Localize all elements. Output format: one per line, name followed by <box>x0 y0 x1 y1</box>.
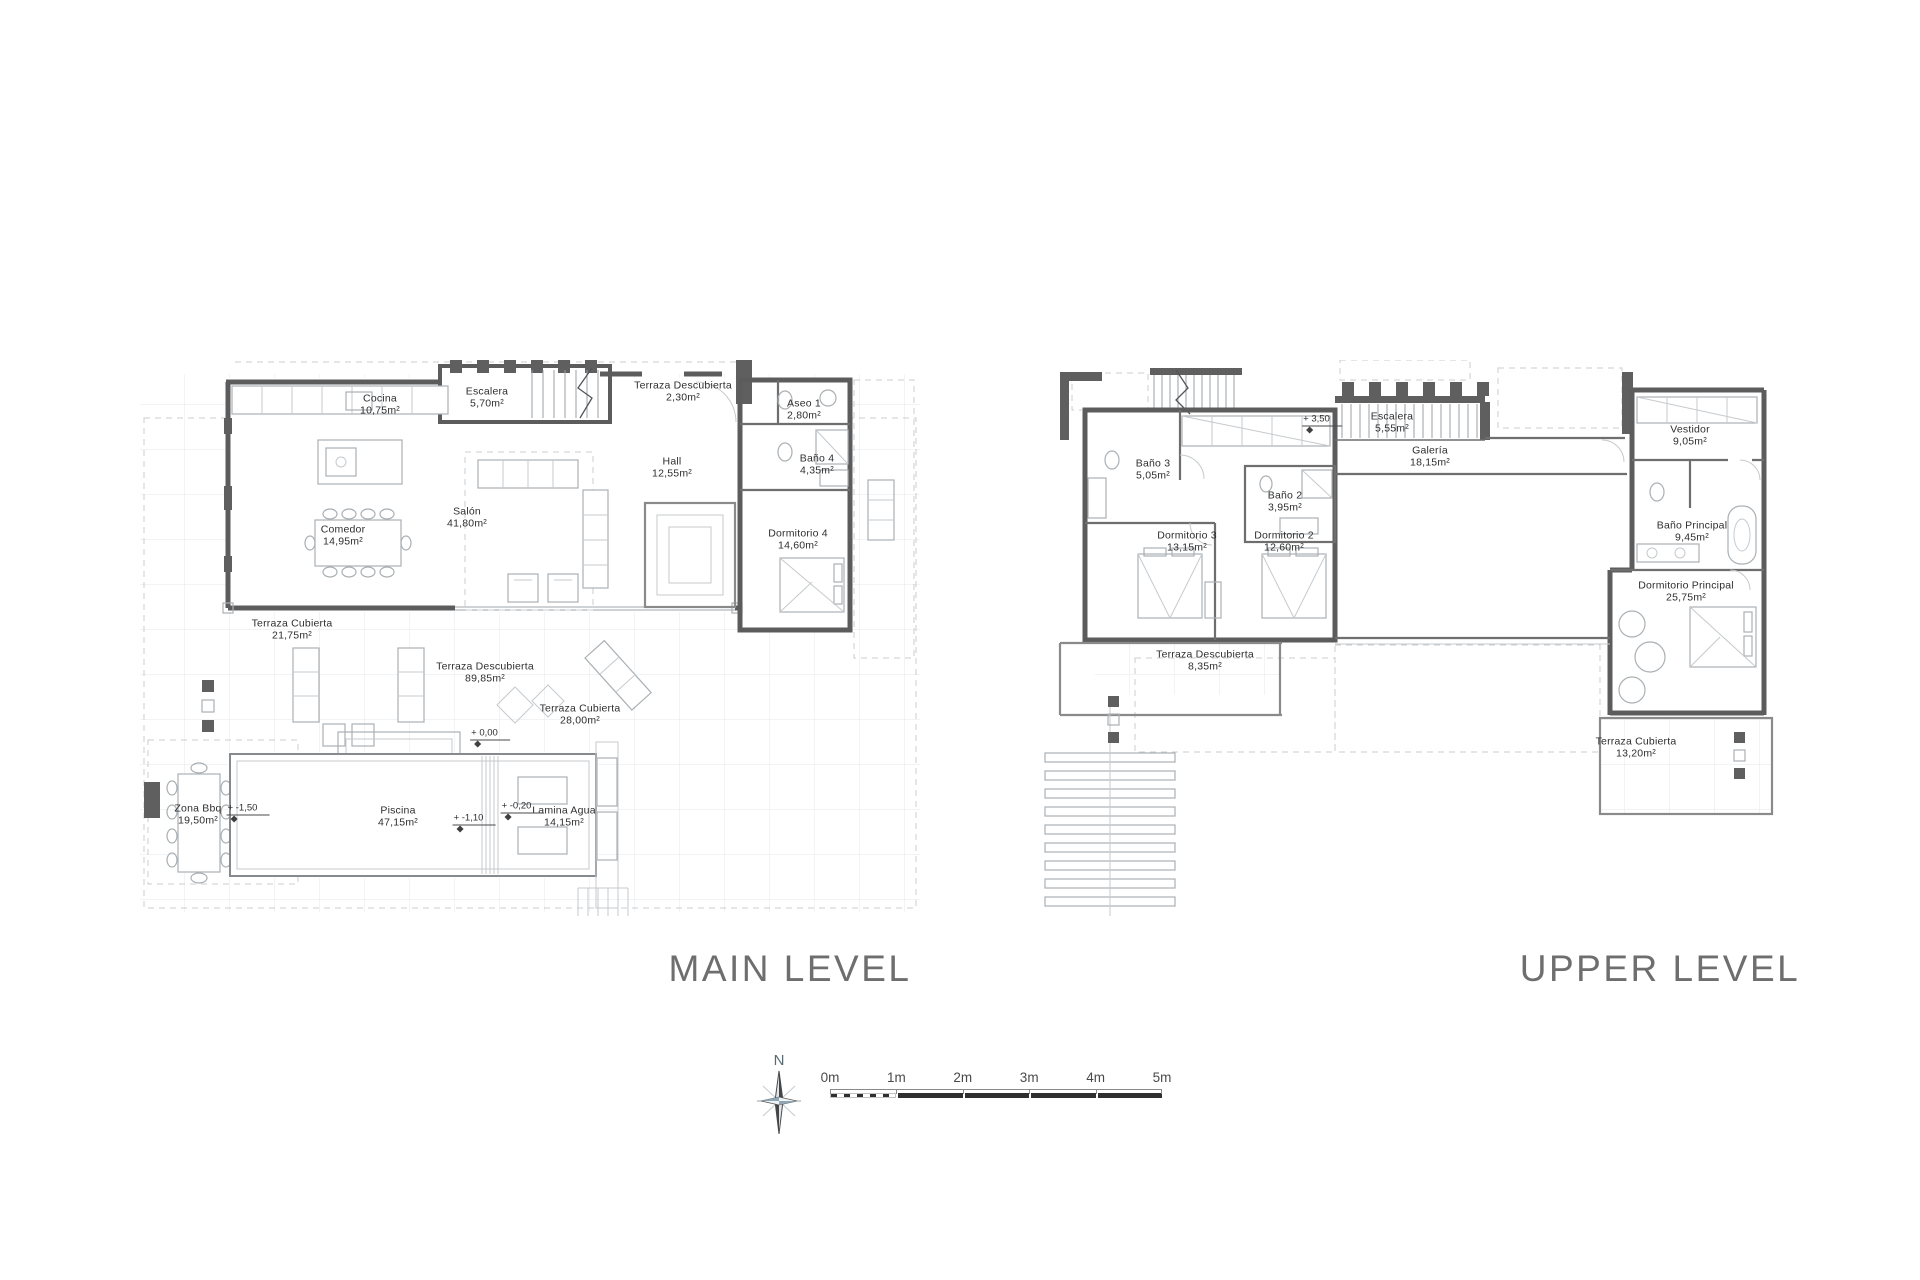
room-label: Escalera5,55m² <box>1371 411 1413 436</box>
room-area: 9,05m² <box>1670 436 1710 448</box>
room-name: Comedor <box>321 524 366 536</box>
room-name: Terraza Cubierta <box>540 703 621 715</box>
room-area: 3,95m² <box>1268 502 1302 514</box>
scale-tick-label: 5m <box>1153 1070 1172 1085</box>
floorplan-sheet: Cocina10,75m² Escalera5,70m² Terraza Des… <box>0 0 1920 1280</box>
level-marker: + -1,10 <box>453 813 496 832</box>
room-label: Baño 23,95m² <box>1268 490 1302 515</box>
room-name: Dormitorio 4 <box>768 528 828 540</box>
scale-segment <box>1098 1093 1162 1098</box>
upper-level-plan: Baño 35,05m² Escalera5,55m² Galería18,15… <box>1040 360 1850 920</box>
room-area: 4,35m² <box>800 465 834 477</box>
room-area: 13,20m² <box>1596 748 1677 760</box>
deck-stairs <box>1045 696 1175 916</box>
room-area: 41,80m² <box>447 518 487 530</box>
room-area: 5,70m² <box>466 398 508 410</box>
room-label: Escalera5,70m² <box>466 386 508 411</box>
scale-segment <box>965 1093 1029 1098</box>
room-area: 18,15m² <box>1410 457 1450 469</box>
room-label: Zona Bbq19,50m² <box>174 803 221 828</box>
bedroom2-bed <box>1262 548 1326 618</box>
room-label: Vestidor9,05m² <box>1670 424 1710 449</box>
room-label: Cocina10,75m² <box>360 393 400 418</box>
room-label: Comedor14,95m² <box>321 524 366 549</box>
room-label: Galería18,15m² <box>1410 445 1450 470</box>
room-label: Terraza Cubierta21,75m² <box>252 618 333 643</box>
room-label: Salón41,80m² <box>447 506 487 531</box>
scale-segment <box>898 1093 962 1098</box>
scale-segment <box>1031 1093 1095 1098</box>
room-area: 19,50m² <box>174 815 221 827</box>
room-name: Salón <box>447 506 487 518</box>
scale-bar-graphic <box>830 1089 1162 1098</box>
scale-tick-label: 4m <box>1086 1070 1105 1085</box>
room-name: Vestidor <box>1670 424 1710 436</box>
room-name: Piscina <box>378 805 418 817</box>
room-area: 47,15m² <box>378 817 418 829</box>
bedroom4-bed <box>780 558 844 612</box>
room-area: 14,60m² <box>768 540 828 552</box>
room-name: Terraza Cubierta <box>1596 736 1677 748</box>
room-label: Baño Principal9,45m² <box>1657 520 1728 545</box>
room-name: Aseo 1 <box>787 398 821 410</box>
room-area: 5,55m² <box>1371 423 1413 435</box>
room-name: Baño 4 <box>800 453 834 465</box>
room-label: Aseo 12,80m² <box>787 398 821 423</box>
room-area: 9,45m² <box>1657 532 1728 544</box>
room-label: Terraza Cubierta28,00m² <box>540 703 621 728</box>
room-area: 12,60m² <box>1254 542 1314 554</box>
room-label: Terraza Descubierta2,30m² <box>634 380 732 405</box>
room-name: Cocina <box>360 393 400 405</box>
scale-segment <box>830 1093 896 1098</box>
room-area: 8,35m² <box>1156 661 1254 673</box>
room-name: Dormitorio 3 <box>1157 530 1217 542</box>
room-label: Piscina47,15m² <box>378 805 418 830</box>
room-label: Dormitorio 212,60m² <box>1254 530 1314 555</box>
room-name: Galería <box>1410 445 1450 457</box>
room-area: 10,75m² <box>360 405 400 417</box>
room-label: Baño 35,05m² <box>1136 458 1170 483</box>
room-name: Terraza Descubierta <box>634 380 732 392</box>
scale-bar: 0m 1m 2m 3m 4m 5m <box>830 1070 1162 1098</box>
room-name: Dormitorio 2 <box>1254 530 1314 542</box>
level-marker: + 3,50 <box>1302 414 1342 433</box>
room-name: Dormitorio Principal <box>1638 580 1734 592</box>
upper-level-title: UPPER LEVEL <box>1520 948 1800 990</box>
room-label: Terraza Descubierta8,35m² <box>1156 649 1254 674</box>
room-name: Terraza Descubierta <box>436 661 534 673</box>
room-name: Zona Bbq <box>174 803 221 815</box>
scale-tick-label: 0m <box>821 1070 840 1085</box>
scale-tick-label: 3m <box>1020 1070 1039 1085</box>
room-label: Dormitorio 414,60m² <box>768 528 828 553</box>
room-name: Escalera <box>1371 411 1413 423</box>
room-area: 12,55m² <box>652 468 692 480</box>
level-marker: + -1,50 <box>227 803 270 822</box>
room-area: 28,00m² <box>540 715 621 727</box>
north-compass: N <box>755 1052 803 1141</box>
level-marker: + -0,20 <box>501 801 544 820</box>
room-name: Hall <box>652 456 692 468</box>
room-label: Dormitorio Principal25,75m² <box>1638 580 1734 605</box>
room-label: Hall12,55m² <box>652 456 692 481</box>
room-area: 2,30m² <box>634 392 732 404</box>
room-label: Terraza Descubierta89,85m² <box>436 661 534 686</box>
room-area: 14,95m² <box>321 536 366 548</box>
scale-tick-label: 1m <box>887 1070 906 1085</box>
main-level-title: MAIN LEVEL <box>669 948 912 990</box>
north-label: N <box>755 1052 803 1069</box>
room-label: Dormitorio 313,15m² <box>1157 530 1217 555</box>
room-label: Baño 44,35m² <box>800 453 834 478</box>
scale-tick-label: 2m <box>953 1070 972 1085</box>
room-area: 2,80m² <box>787 410 821 422</box>
room-name: Escalera <box>466 386 508 398</box>
room-name: Baño 2 <box>1268 490 1302 502</box>
room-name: Baño Principal <box>1657 520 1728 532</box>
room-name: Baño 3 <box>1136 458 1170 470</box>
compass-rose-icon <box>755 1070 803 1136</box>
room-area: 89,85m² <box>436 673 534 685</box>
room-name: Terraza Descubierta <box>1156 649 1254 661</box>
level-marker: + 0,00 <box>470 728 510 747</box>
room-area: 13,15m² <box>1157 542 1217 554</box>
room-name: Terraza Cubierta <box>252 618 333 630</box>
room-label: Terraza Cubierta13,20m² <box>1596 736 1677 761</box>
scale-labels: 0m 1m 2m 3m 4m 5m <box>830 1070 1162 1086</box>
room-area: 21,75m² <box>252 630 333 642</box>
room-area: 25,75m² <box>1638 592 1734 604</box>
main-level-plan: Cocina10,75m² Escalera5,70m² Terraza Des… <box>140 360 920 920</box>
room-area: 5,05m² <box>1136 470 1170 482</box>
